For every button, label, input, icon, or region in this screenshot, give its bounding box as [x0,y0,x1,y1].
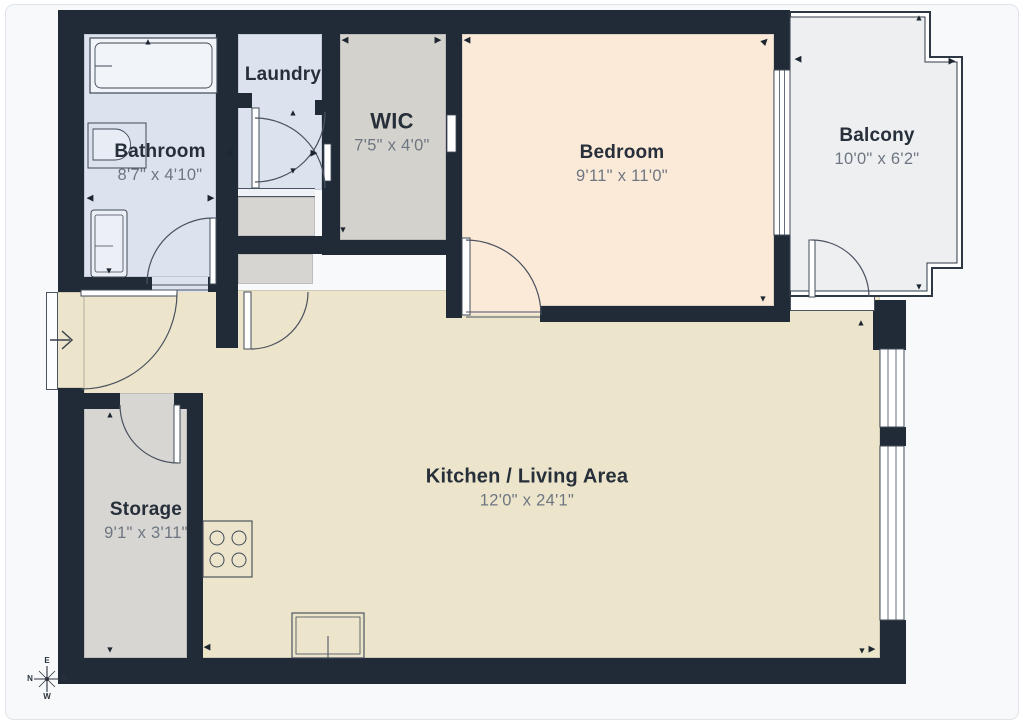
dimension-arrow-icon: ▶ [949,57,956,66]
dimension-arrow-icon: ▲ [144,38,153,47]
living-window-lower [880,446,904,620]
room-dims: 10'0" x 6'2" [835,150,920,169]
room-label-wic: WIC 7'5" x 4'0" [354,108,429,155]
storage-door-leaf [174,405,180,463]
bedroom-door-arc [466,240,541,315]
room-name: Balcony [835,125,920,147]
balcony-door-leaf [809,240,815,297]
dimension-arrow-icon: ▲ [915,14,924,23]
room-name: Laundry [245,64,321,86]
bathtub [90,38,217,93]
room-dims: 12'0" x 24'1" [426,492,628,511]
room-name: Kitchen / Living Area [426,466,628,489]
dimension-arrow-icon: ▼ [289,167,298,176]
room-dims: 7'5" x 4'0" [354,137,429,156]
living-window-upper [880,349,904,427]
bedroom-door-leaf [462,238,470,315]
dimension-arrow-icon: ▲ [106,411,115,420]
dimension-arrow-icon: ◀ [464,36,471,45]
room-label-kitchen-living: Kitchen / Living Area 12'0" x 24'1" [426,466,628,511]
hallway-door-arc [251,292,308,349]
dimension-arrow-icon: ◀ [226,149,233,158]
compass-letter-north: N [27,675,33,683]
room-dims: 9'1" x 3'11" [104,524,188,543]
dimension-arrow-icon: ▶ [869,645,876,654]
dimension-arrow-icon: ◀ [204,643,211,652]
compass-letter-east: E [44,657,49,665]
room-label-laundry: Laundry [245,64,321,86]
room-name: Storage [104,499,188,521]
entry-door-leaf [81,290,177,296]
room-name: Bathroom [114,141,205,163]
dimension-arrow-icon: ◀ [342,36,349,45]
dimension-arrow-icon: ◀ [795,55,802,64]
dimension-arrow-icon: ▶ [435,36,442,45]
dimension-arrow-icon: ▼ [759,295,768,304]
room-label-storage: Storage 9'1" x 3'11" [104,499,188,543]
dimension-arrow-icon: ▼ [106,646,115,655]
compass-letter-west: W [43,693,51,701]
room-name: WIC [354,108,429,133]
room-label-bathroom: Bathroom 8'7" x 4'10" [114,141,205,185]
laundry-door-jamb [324,144,331,181]
room-dims: 8'7" x 4'10" [114,166,205,185]
dimension-arrow-icon: ▶ [208,194,215,203]
plan-vector-overlay [0,0,1024,724]
storage-door-arc [120,405,178,463]
entry-door-arc [81,293,177,389]
bedroom-door-sill [466,312,540,317]
dimension-arrow-icon: ▲ [857,319,866,328]
kitchen-sink [292,613,364,658]
compass-letter-south: S [61,675,66,683]
bathroom-door-sill [152,285,208,290]
laundry-door-leaf [252,108,259,188]
dimension-arrow-icon: ▼ [858,647,867,656]
bathroom-door-leaf [210,218,216,284]
dimension-arrow-icon: ▼ [105,267,114,276]
floorplan-page: Bathroom 8'7" x 4'10" Laundry WIC 7'5" x… [0,0,1024,724]
dimension-arrow-icon: ▼ [915,283,924,292]
dimension-arrow-icon: ▲ [289,109,298,118]
room-dims: 9'11" x 11'0" [576,167,668,186]
room-label-balcony: Balcony 10'0" x 6'2" [835,125,920,169]
dimension-arrow-icon: ▶ [311,149,318,158]
bathroom-door-arc [147,218,213,284]
dimension-arrow-icon: ◀ [87,194,94,203]
entry-arrow-icon [50,331,72,349]
wic-bedroom-opening [447,115,456,152]
room-label-bedroom: Bedroom 9'11" x 11'0" [576,142,668,186]
stove [203,521,252,577]
bedroom-balcony-window [774,70,790,235]
hallway-door-leaf [244,292,251,349]
room-name: Bedroom [576,142,668,164]
compass-star-icon [34,666,60,692]
dimension-arrow-icon: ▼ [339,226,348,235]
